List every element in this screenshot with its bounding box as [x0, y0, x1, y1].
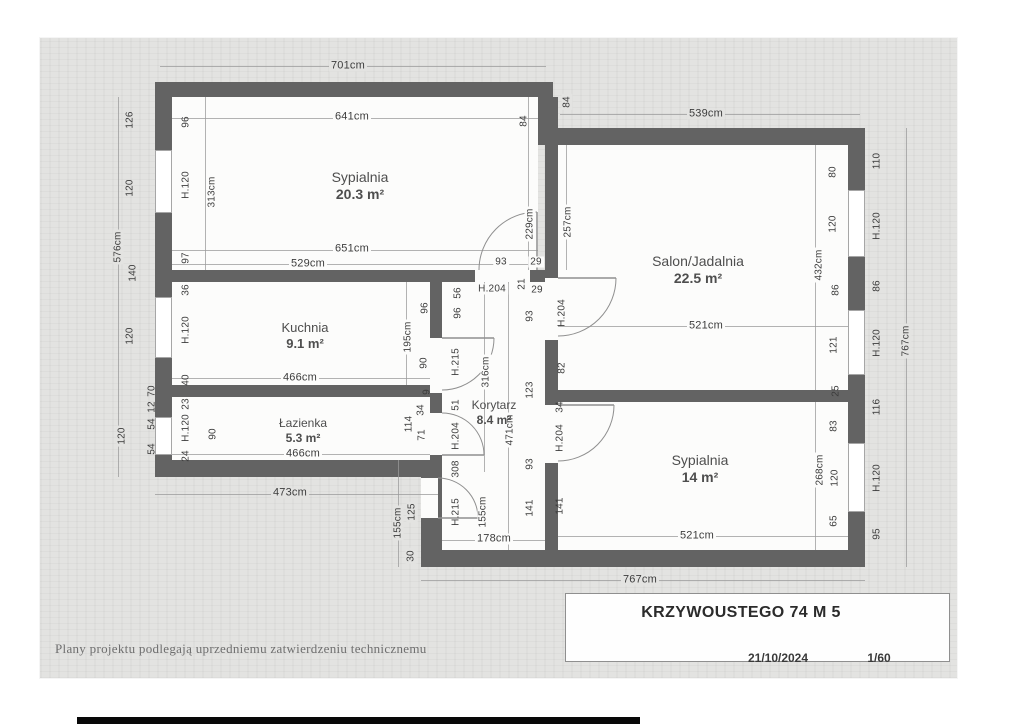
dimension-label: 80: [828, 166, 839, 178]
dimension-label: 116: [872, 399, 883, 416]
room-area: 20.3 m²: [332, 186, 389, 203]
dimension-label: H.120: [872, 464, 883, 492]
room-name: Kuchnia: [282, 320, 329, 336]
room-name: Salon/Jadalnia: [652, 253, 744, 270]
dimension-label: 34: [555, 401, 566, 413]
dimension-label: 120: [125, 179, 136, 196]
dimension-label: H.120: [181, 414, 192, 442]
dimension-label: 90: [208, 428, 219, 440]
dimension-label: 651cm: [333, 244, 371, 255]
window: [155, 417, 172, 455]
dimension-line: [172, 264, 538, 265]
dimension-label: 178cm: [475, 534, 513, 545]
room-area: 14 m²: [672, 469, 729, 486]
dimension-label: 141: [525, 499, 536, 516]
dimension-label: 95: [872, 528, 883, 540]
dimension-label: 120: [125, 327, 136, 344]
door-opening: [430, 413, 442, 455]
dimension-label: 30: [406, 548, 417, 564]
dimension-label: 93: [525, 458, 536, 470]
room-name: Sypialnia: [332, 169, 389, 186]
wall: [155, 460, 438, 477]
dimension-label: H.120: [181, 171, 192, 199]
room-label: Salon/Jadalnia22.5 m²: [652, 253, 744, 287]
dimension-label: 229cm: [525, 206, 536, 241]
dimension-label: 71: [417, 429, 428, 441]
dimension-label: 86: [872, 280, 883, 292]
door-opening: [421, 478, 438, 518]
dimension-label: 34: [416, 404, 427, 416]
dimension-label: 96: [181, 116, 192, 128]
dimension-label: H.215: [451, 348, 462, 376]
dimension-label: 97: [181, 252, 192, 264]
dimension-label: 767cm: [901, 323, 912, 358]
dimension-label: 268cm: [815, 452, 826, 487]
title-block: KRZYWOUSTEGO 74 M 5 21/10/2024 1/60: [565, 593, 950, 662]
dimension-label: 123: [525, 381, 536, 398]
dimension-label: 125: [407, 501, 418, 522]
dimension-label: 701cm: [329, 61, 367, 72]
dimension-label: 21: [517, 278, 528, 290]
window: [848, 310, 865, 375]
dimension-label: 141: [555, 497, 566, 514]
dimension-label: 40: [181, 374, 192, 386]
dimension-label: 126: [125, 111, 136, 128]
dimension-label: 83: [829, 420, 840, 432]
wall: [155, 82, 553, 97]
dimension-label: 54: [147, 418, 158, 430]
room-name: Sypialnia: [672, 452, 729, 469]
room-label: Sypialnia14 m²: [672, 452, 729, 486]
dimension-label: 521cm: [678, 531, 716, 542]
dimension-label: 313cm: [207, 174, 218, 209]
room-area: 5.3 m²: [279, 431, 327, 446]
room-label: Sypialnia20.3 m²: [332, 169, 389, 203]
dimension-label: 90: [419, 357, 430, 369]
dimension-label: 432cm: [814, 247, 825, 282]
dimension-label: 521cm: [687, 321, 725, 332]
room-area: 9.1 m²: [282, 336, 329, 352]
dimension-label: 641cm: [333, 112, 371, 123]
dimension-label: 29: [528, 257, 544, 268]
dimension-label: 36: [181, 284, 192, 296]
dimension-label: 24: [181, 450, 192, 462]
dimension-label: 308: [451, 460, 462, 477]
dimension-label: 466cm: [284, 449, 322, 460]
dimension-label: 316cm: [481, 354, 492, 389]
dimension-label: 29: [529, 285, 545, 296]
wall: [545, 390, 848, 402]
dimension-label: 114: [404, 416, 415, 433]
dimension-label: 70: [147, 385, 158, 397]
dimension-label: H.204: [555, 424, 566, 452]
window: [155, 150, 172, 213]
wall: [155, 385, 442, 397]
dimension-label: 65: [829, 515, 840, 527]
window: [848, 190, 865, 257]
plan-title: KRZYWOUSTEGO 74 M 5: [641, 604, 841, 622]
dimension-label: H.215: [451, 498, 462, 526]
dimension-label: 56: [453, 287, 464, 299]
scan-artifact-bar: [77, 717, 640, 724]
plan-scale: 1/60: [867, 651, 890, 665]
dimension-label: H.204: [451, 422, 462, 450]
dimension-label: 54: [147, 443, 158, 455]
dimension-label: 23: [181, 398, 192, 410]
dimension-label: 120: [828, 215, 839, 232]
dimension-label: 84: [519, 115, 530, 127]
dimension-label: 576cm: [113, 229, 124, 264]
dimension-label: 155cm: [393, 505, 404, 540]
dimension-label: 539cm: [687, 109, 725, 120]
room-area: 22.5 m²: [652, 270, 744, 287]
dimension-line: [118, 97, 119, 477]
dimension-label: H.204: [476, 284, 508, 295]
dimension-label: 110: [872, 153, 883, 170]
room-label: Kuchnia9.1 m²: [282, 320, 329, 352]
dimension-label: 257cm: [563, 204, 574, 239]
dimension-label: 82: [557, 362, 568, 374]
dimension-label: 529cm: [289, 259, 327, 270]
dimension-label: 93: [525, 310, 536, 322]
dimension-label: 473cm: [271, 488, 309, 499]
dimension-label: 140: [128, 264, 139, 281]
dimension-label: 25: [831, 385, 842, 397]
room-label: Łazienka5.3 m²: [279, 416, 327, 446]
dimension-label: 767cm: [621, 575, 659, 586]
dimension-label: 120: [117, 425, 128, 446]
dimension-label: H.120: [181, 316, 192, 344]
dimension-label: 96: [420, 302, 431, 314]
wall: [545, 128, 865, 145]
dimension-label: 93: [493, 257, 509, 268]
approval-note: Plany projektu podlegają uprzedniemu zat…: [55, 641, 427, 657]
room-label: Korytarz8.4 m²: [472, 398, 517, 428]
dimension-label: H.120: [872, 329, 883, 357]
room-area: 8.4 m²: [472, 413, 517, 428]
wall: [155, 270, 475, 282]
dimension-label: H.120: [872, 212, 883, 240]
plan-date: 21/10/2024: [748, 651, 808, 665]
dimension-label: 51: [451, 399, 462, 411]
door-opening: [430, 338, 442, 393]
window: [848, 443, 865, 512]
dimension-label: 86: [831, 284, 842, 296]
dimension-label: 121: [829, 336, 840, 353]
room-name: Korytarz: [472, 398, 517, 413]
wall: [421, 550, 865, 567]
room-name: Łazienka: [279, 416, 327, 431]
dimension-label: 12: [147, 401, 158, 413]
dimension-label: 155cm: [478, 494, 489, 529]
dimension-label: 195cm: [403, 319, 414, 354]
dimension-label: 96: [453, 307, 464, 319]
dimension-label: 84: [562, 94, 573, 110]
window: [155, 297, 172, 358]
dimension-label: 466cm: [281, 373, 319, 384]
dimension-label: 120: [830, 469, 841, 486]
dimension-label: H.204: [557, 299, 568, 327]
dimension-label: 9: [422, 389, 433, 395]
